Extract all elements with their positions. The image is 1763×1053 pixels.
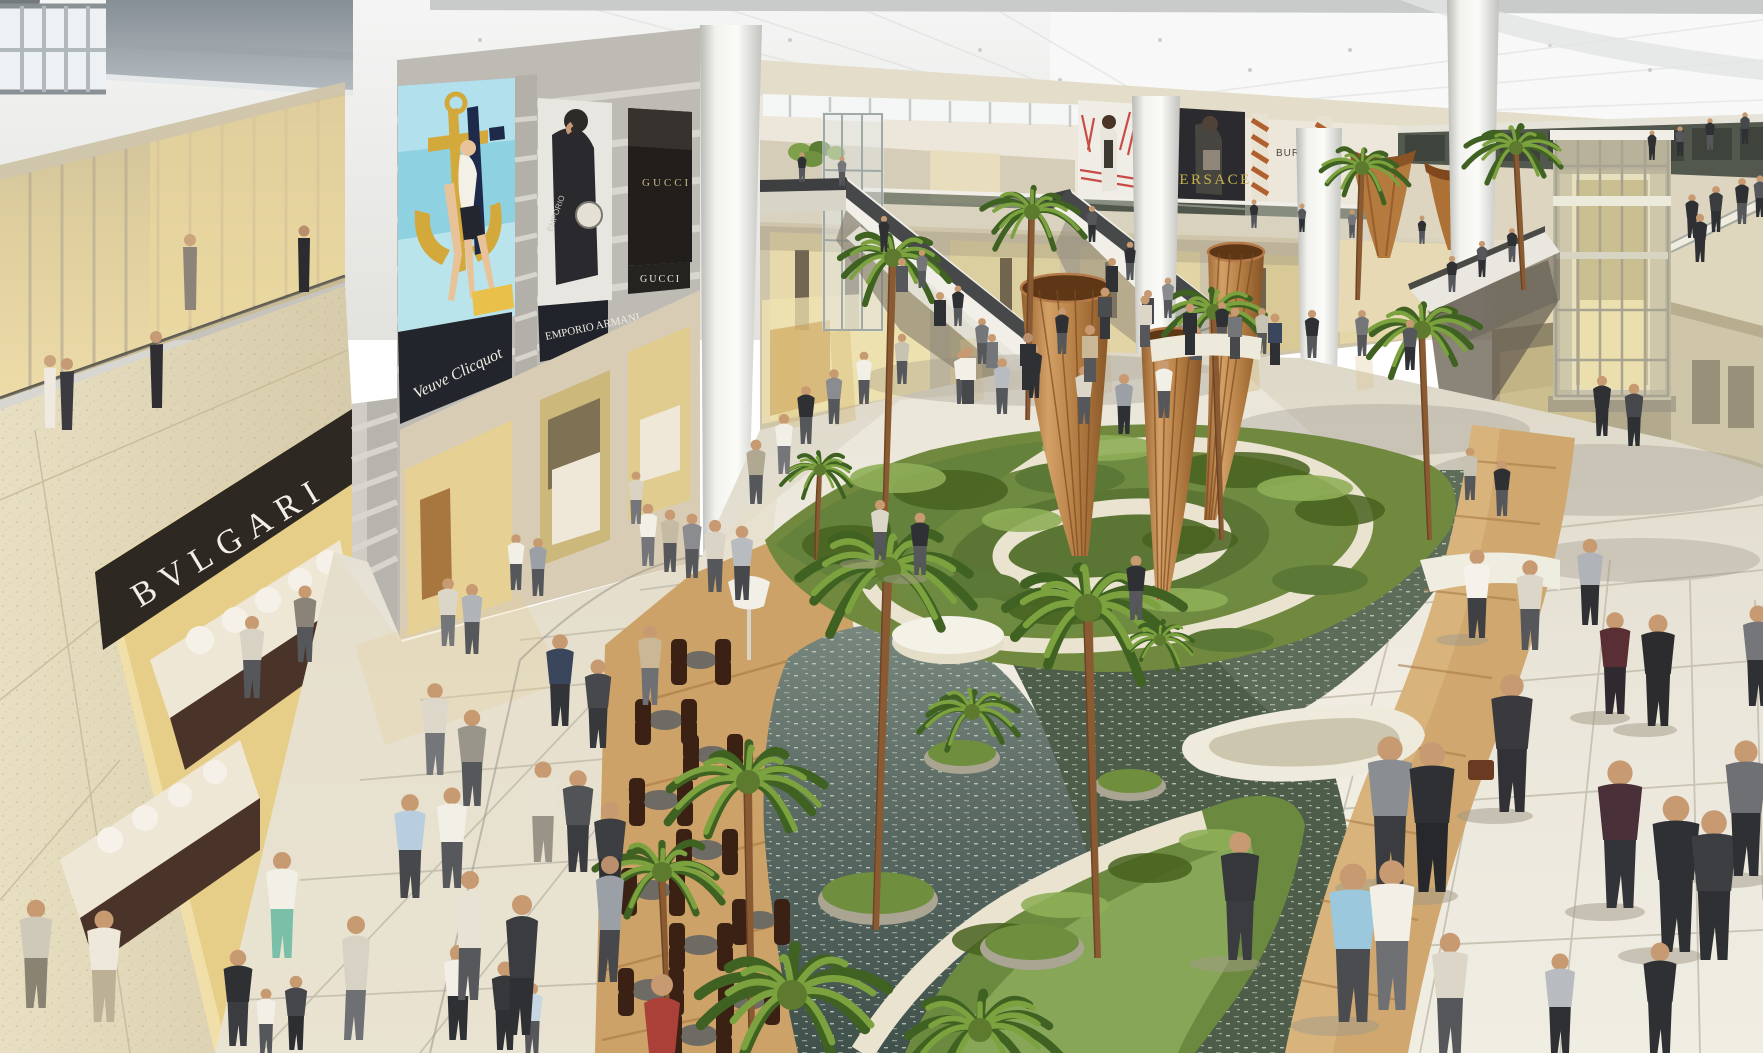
svg-text:VERSACE: VERSACE (1166, 172, 1252, 188)
svg-text:GUCCI: GUCCI (640, 274, 681, 285)
svg-text:GUCCI: GUCCI (642, 177, 691, 189)
